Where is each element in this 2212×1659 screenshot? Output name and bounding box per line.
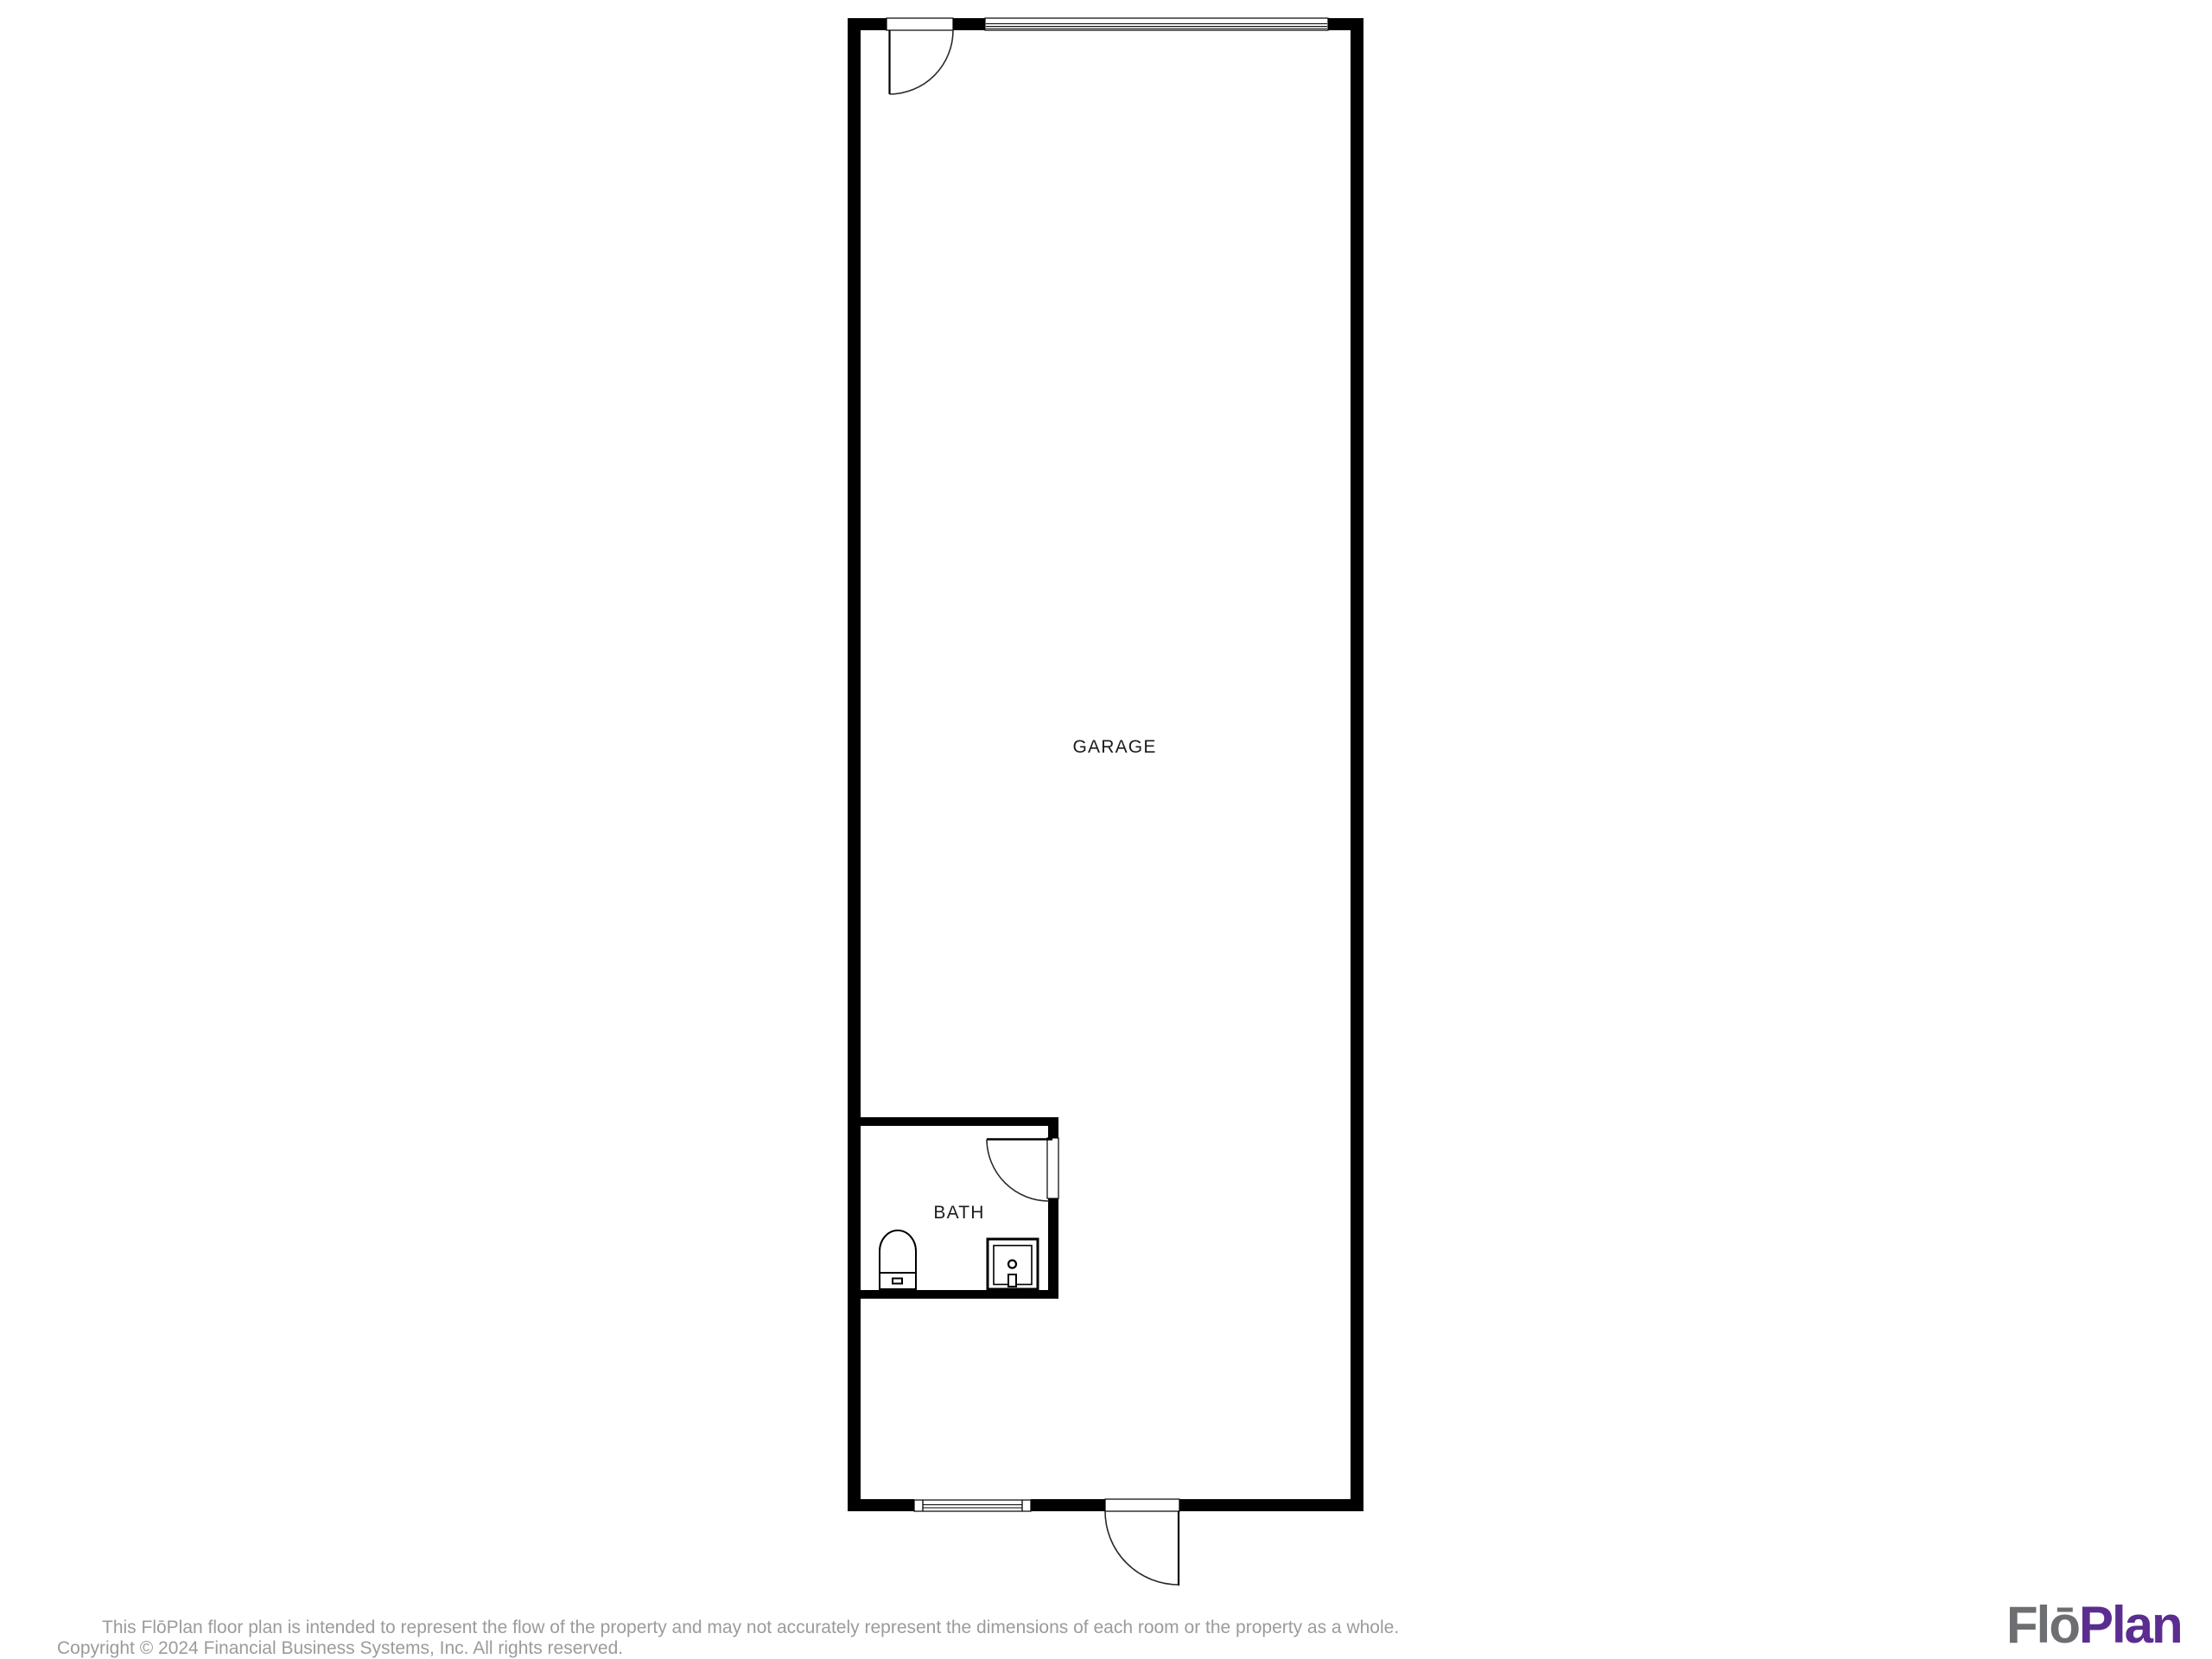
floor-plan-drawing: GARAGE BATH: [0, 0, 2212, 1659]
wall-segment: [1179, 1499, 1363, 1511]
wall-segment: [848, 1117, 1058, 1126]
garage-door-icon: [985, 18, 1328, 30]
page: GARAGE BATH This FlōPlan floor plan is i…: [0, 0, 2212, 1659]
footer: This FlōPlan floor plan is intended to r…: [57, 1618, 1399, 1659]
garage-room-label: GARAGE: [1072, 737, 1156, 757]
wall-segment: [1351, 18, 1363, 1511]
exterior-door-icon: [1105, 1499, 1179, 1586]
toilet-icon: [880, 1230, 916, 1289]
copyright-text: Copyright © 2024 Financial Business Syst…: [57, 1638, 1399, 1659]
disclaimer-text: This FlōPlan floor plan is intended to r…: [57, 1618, 1399, 1638]
wall-segment: [953, 18, 985, 30]
wall-segment: [848, 1290, 1058, 1299]
bath-room-label: BATH: [933, 1203, 984, 1223]
wall-segment: [1048, 1117, 1058, 1138]
logo-flo-text: Flō: [2006, 1596, 2079, 1654]
bath-door-icon: [987, 1138, 1058, 1201]
sink-icon: [988, 1239, 1038, 1289]
wall-segment: [848, 18, 861, 1511]
entry-door-icon: [887, 18, 953, 94]
window-icon: [914, 1500, 1031, 1511]
exterior-walls: [848, 18, 1363, 1511]
floplan-logo: FlōPlan: [2006, 1595, 2182, 1655]
wall-segment: [848, 1499, 914, 1511]
wall-segment: [1048, 1198, 1058, 1299]
logo-plan-text: Plan: [2079, 1596, 2182, 1654]
wall-segment: [1031, 1499, 1105, 1511]
